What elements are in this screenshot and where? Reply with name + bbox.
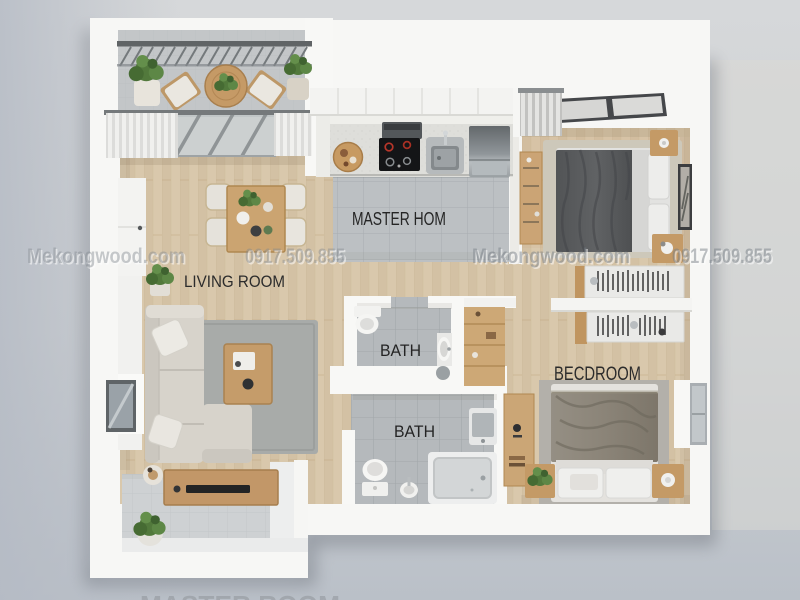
svg-text:LIVING ROOM: LIVING ROOM [184, 273, 285, 291]
svg-text:BATH: BATH [380, 342, 421, 360]
svg-text:BECDROOM: BECDROOM [554, 364, 641, 385]
svg-text:BATH: BATH [394, 423, 435, 441]
svg-text:Mekongwood.com: Mekongwood.com [472, 245, 630, 268]
svg-text:MASTER HOM: MASTER HOM [352, 209, 446, 229]
svg-text:0917.509.855: 0917.509.855 [672, 245, 772, 268]
svg-text:MASTER ROOM: MASTER ROOM [140, 590, 340, 600]
svg-text:Mekongwood.com: Mekongwood.com [27, 245, 185, 268]
svg-text:0917.509.855: 0917.509.855 [245, 245, 345, 268]
